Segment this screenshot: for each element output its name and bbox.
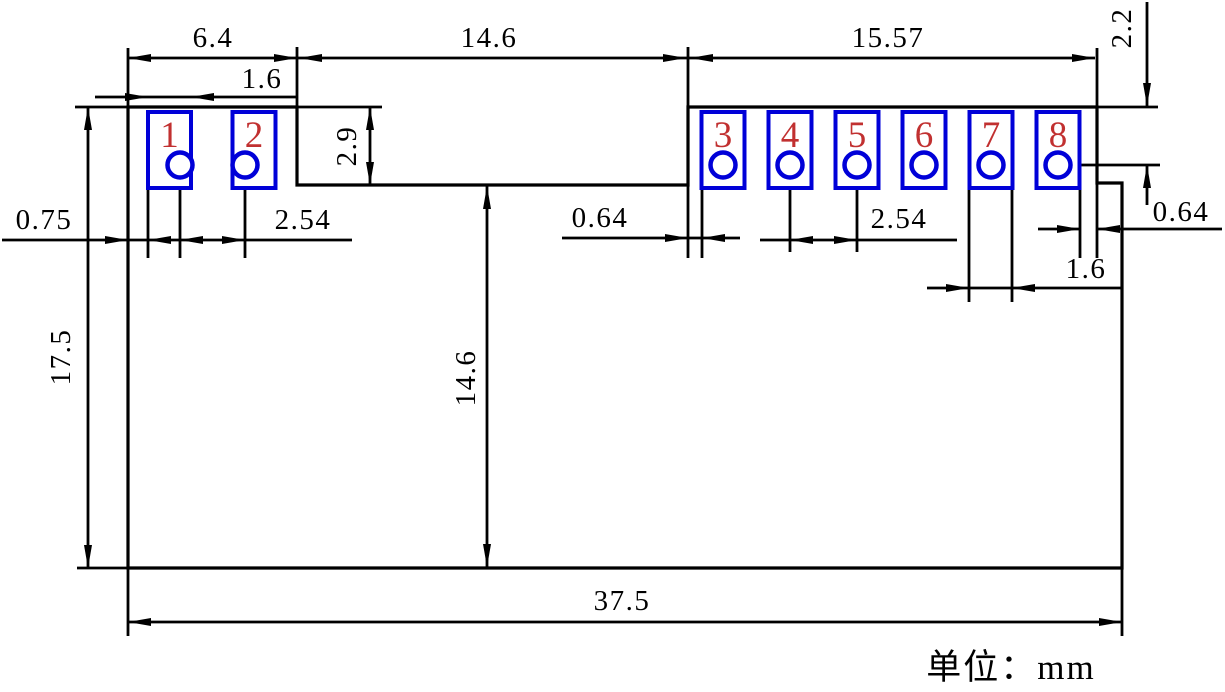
arrowhead <box>1057 225 1080 233</box>
pad-number: 6 <box>915 115 934 156</box>
arrowhead <box>128 618 151 626</box>
dim-pad-row-top-offset: 2.2 <box>1106 8 1138 49</box>
pad-hole <box>912 153 937 178</box>
pad-3: 3 <box>702 112 745 188</box>
dimension-linework <box>2 2 1222 636</box>
unit-label: 单位：mm <box>926 648 1095 687</box>
dim-pad1-width: 1.6 <box>242 63 283 95</box>
arrowhead <box>1097 225 1120 233</box>
drawing-canvas: 12345678 6.4 14.6 15.57 2.2 1.6 2.9 0.75… <box>0 0 1225 692</box>
dim-edge-to-pad1: 0.75 <box>16 204 73 236</box>
pad-number: 1 <box>160 115 179 156</box>
pad-group: 12345678 <box>148 112 1080 188</box>
pad-number: 5 <box>848 115 867 156</box>
pad-6: 6 <box>903 112 946 188</box>
dim-middle-gap-width: 14.6 <box>461 22 518 54</box>
arrowhead <box>84 545 92 568</box>
arrowhead <box>180 236 203 244</box>
arrowhead <box>702 234 725 242</box>
arrowhead <box>84 107 92 130</box>
pad-number: 2 <box>245 115 264 156</box>
pad-hole <box>778 153 803 178</box>
arrowhead <box>663 54 686 62</box>
dim-pad8-to-edge: 0.64 <box>1153 196 1210 228</box>
arrowhead <box>1072 54 1095 62</box>
dim-notch-depth: 2.9 <box>331 126 363 167</box>
arrowhead <box>665 234 688 242</box>
pad-number: 4 <box>781 115 800 156</box>
pad-hole <box>979 153 1004 178</box>
arrowhead <box>222 236 245 244</box>
pad-2: 2 <box>233 112 276 188</box>
arrowhead <box>483 544 491 567</box>
arrowhead <box>690 54 713 62</box>
arrowhead <box>148 236 171 244</box>
pad-5: 5 <box>836 112 879 188</box>
pad-hole <box>168 153 193 178</box>
pad-hole <box>233 153 258 178</box>
dim-edge-to-pad3: 0.64 <box>572 202 629 234</box>
pad-hole <box>1046 153 1071 178</box>
dim-overall-height: 17.5 <box>45 329 77 386</box>
dim-left-pitch: 2.54 <box>275 204 332 236</box>
arrowhead <box>366 107 374 130</box>
dim-left-module-width: 6.4 <box>193 22 234 54</box>
arrowhead <box>1143 165 1151 188</box>
pad-1: 1 <box>148 112 193 188</box>
arrowhead <box>191 93 214 101</box>
dim-right-module-width: 15.57 <box>852 22 925 54</box>
dim-lower-body-height: 14.6 <box>450 350 482 407</box>
dim-overall-width: 37.5 <box>594 585 651 617</box>
arrowhead <box>834 236 857 244</box>
pad-number: 8 <box>1049 115 1068 156</box>
arrowhead <box>274 54 297 62</box>
dim-right-pitch: 2.54 <box>871 203 928 235</box>
arrowhead <box>1012 284 1035 292</box>
pad-4: 4 <box>769 112 812 188</box>
arrowhead <box>125 93 148 101</box>
arrowhead <box>1099 618 1122 626</box>
arrowhead <box>105 236 128 244</box>
pad-number: 3 <box>714 115 733 156</box>
arrowhead <box>366 162 374 185</box>
arrowhead <box>128 54 151 62</box>
pad-number: 7 <box>982 115 1001 156</box>
arrowhead <box>483 186 491 209</box>
pad-7: 7 <box>970 112 1013 188</box>
pad-hole <box>845 153 870 178</box>
arrowhead <box>299 54 322 62</box>
arrowhead <box>1143 83 1151 106</box>
footprint-dimension-drawing: 12345678 6.4 14.6 15.57 2.2 1.6 2.9 0.75… <box>0 0 1225 692</box>
dim-pad7-width: 1.6 <box>1066 253 1107 285</box>
arrowhead <box>946 284 969 292</box>
pad-hole <box>711 153 736 178</box>
pad-8: 8 <box>1037 112 1080 188</box>
arrowhead <box>790 236 813 244</box>
